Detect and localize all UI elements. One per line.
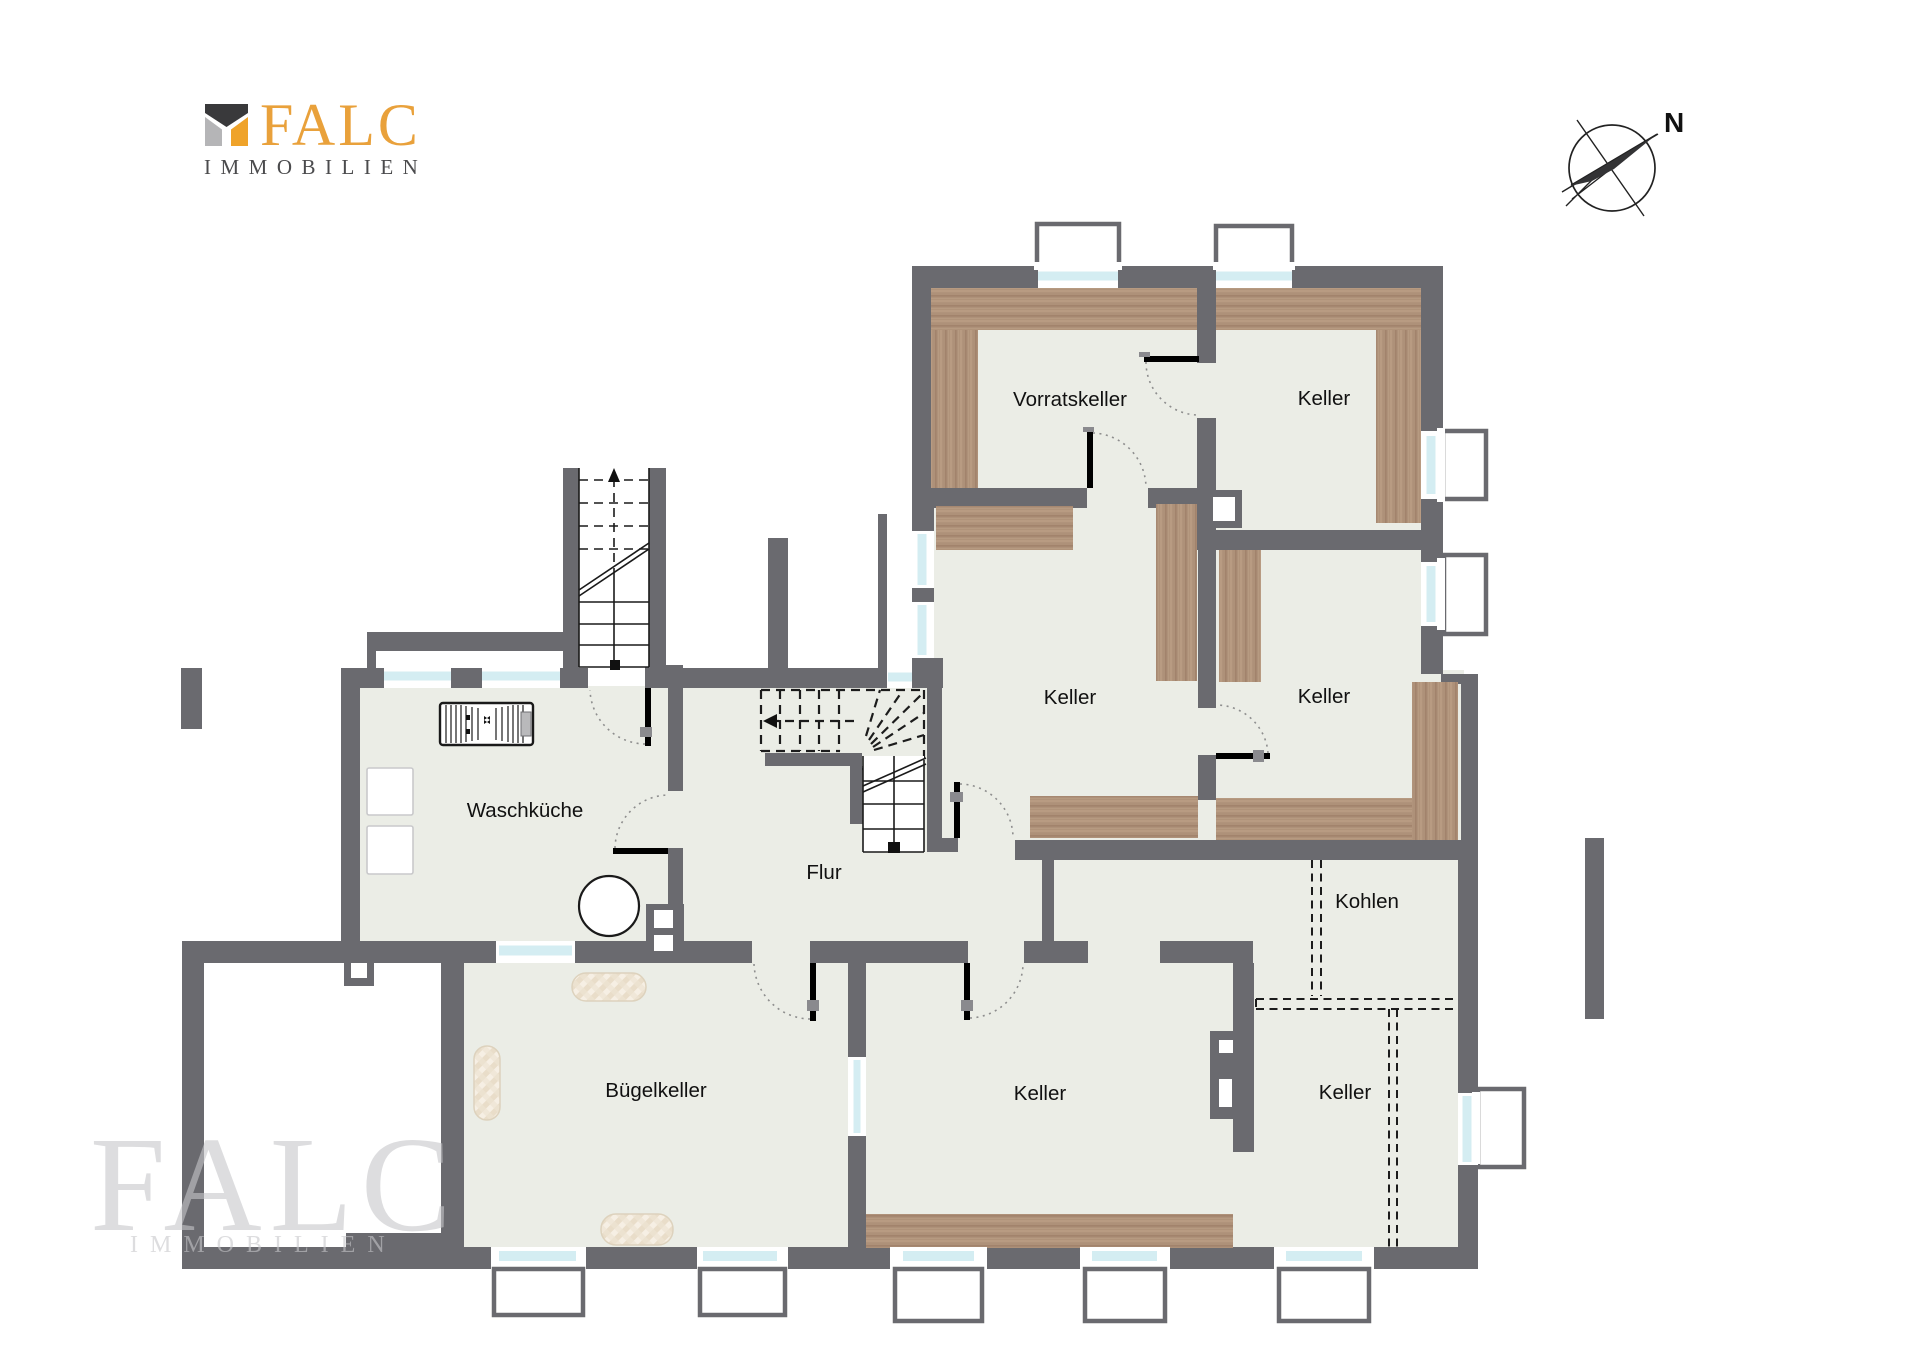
svg-text:Vorratskeller: Vorratskeller xyxy=(1013,388,1127,411)
svg-text:Keller: Keller xyxy=(1298,685,1351,708)
svg-text:Keller: Keller xyxy=(1014,1082,1067,1105)
svg-text:N: N xyxy=(1664,107,1684,138)
svg-text:Waschküche: Waschküche xyxy=(467,799,584,822)
svg-text:Keller: Keller xyxy=(1044,686,1097,709)
svg-text:Kohlen: Kohlen xyxy=(1335,890,1399,913)
svg-text:Keller: Keller xyxy=(1298,387,1351,410)
svg-text:FALC: FALC xyxy=(260,92,421,158)
svg-text:Bügelkeller: Bügelkeller xyxy=(605,1079,707,1102)
svg-text:IMMOBILIEN: IMMOBILIEN xyxy=(204,155,427,179)
svg-text:Keller: Keller xyxy=(1319,1081,1372,1104)
svg-text:Flur: Flur xyxy=(806,861,841,884)
svg-text:IMMOBILIEN: IMMOBILIEN xyxy=(130,1232,397,1258)
